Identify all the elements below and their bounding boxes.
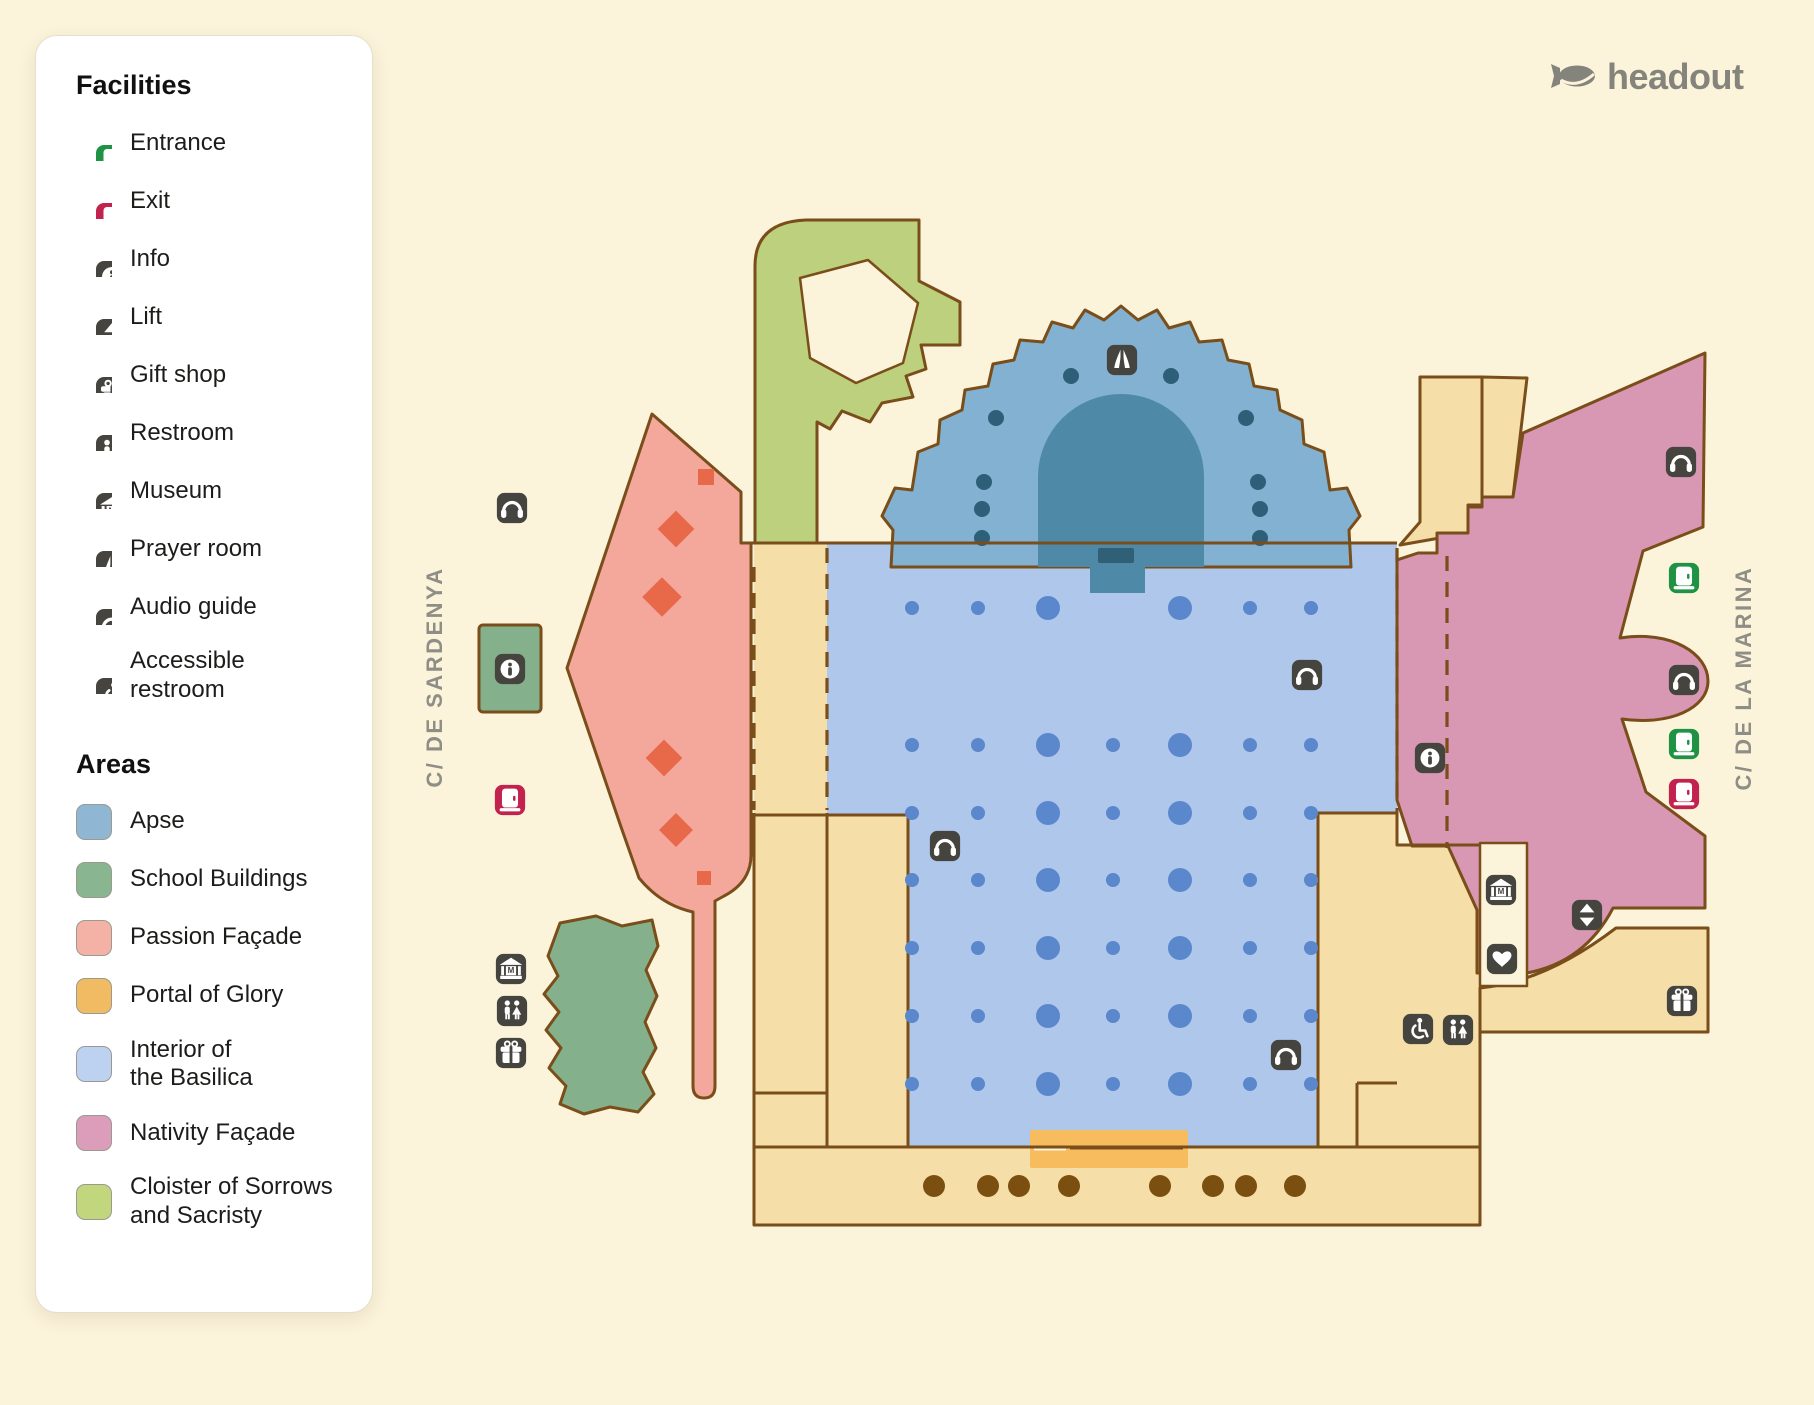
legend-area-row: Passion Façade: [76, 920, 348, 956]
gift-icon: [1667, 986, 1697, 1016]
area-swatch-apse: [76, 804, 112, 840]
legend-panel: Facilities EntranceExitInfoLiftGift shop…: [35, 35, 373, 1313]
restroom-icon: [1443, 1015, 1473, 1045]
legend-facility-row: Prayer room: [76, 531, 348, 567]
area-swatch-school: [76, 862, 112, 898]
legend-facility-label: Exit: [130, 187, 170, 216]
museum-icon: [1486, 875, 1516, 905]
street-label-marina: C/ DE LA MARINA: [1731, 566, 1756, 791]
door-green-icon: [76, 125, 112, 161]
door-green-icon: [1669, 563, 1699, 593]
audio-icon: [930, 831, 960, 861]
door-red-icon: [1669, 779, 1699, 809]
lift-icon: [1572, 900, 1602, 930]
area-swatch-cloister: [76, 1184, 112, 1220]
area-school-buildings: [544, 916, 658, 1114]
audio-icon: [1271, 1040, 1301, 1070]
legend-facility-label: Restroom: [130, 419, 234, 448]
legend-area-row: School Buildings: [76, 862, 348, 898]
legend-facility-row: Restroom: [76, 415, 348, 451]
door-green-icon: [1669, 729, 1699, 759]
areas-list: ApseSchool BuildingsPassion FaçadePortal…: [76, 804, 348, 1231]
surround-left-column: [754, 543, 827, 1147]
legend-facility-row: Entrance: [76, 125, 348, 161]
legend-facility-row: Audio guide: [76, 589, 348, 625]
altar: [1098, 548, 1134, 563]
legend-area-row: Cloister of Sorrows and Sacristy: [76, 1173, 348, 1231]
headout-wordmark: headout: [1607, 56, 1744, 98]
area-swatch-interior: [76, 1046, 112, 1082]
legend-facility-row: Lift: [76, 299, 348, 335]
prayer-icon: [1107, 345, 1137, 375]
surround-left-column-lower: [827, 813, 908, 1147]
legend-area-row: Interior of the Basilica: [76, 1036, 348, 1094]
legend-area-label: Interior of the Basilica: [130, 1036, 253, 1094]
info-icon: [495, 654, 525, 684]
door-red-icon: [76, 183, 112, 219]
wheelchair-icon: [1403, 1014, 1433, 1044]
legend-facility-label: Accessible restroom: [130, 647, 245, 705]
map-page: M: [0, 0, 1814, 1405]
facilities-title: Facilities: [76, 70, 348, 101]
apse-ambulatory: [1038, 394, 1204, 593]
legend-facility-label: Museum: [130, 477, 222, 506]
restroom-icon: [497, 996, 527, 1026]
area-swatch-portal: [76, 978, 112, 1014]
legend-facility-label: Audio guide: [130, 593, 257, 622]
legend-facility-row: Exit: [76, 183, 348, 219]
legend-area-label: Cloister of Sorrows and Sacristy: [130, 1173, 333, 1231]
area-swatch-passion: [76, 920, 112, 956]
museum-icon: [496, 954, 526, 984]
legend-facility-row: Museum: [76, 473, 348, 509]
areas-title: Areas: [76, 749, 348, 780]
audio-icon: [76, 589, 112, 625]
area-interior-of-basilica: [827, 543, 1397, 1147]
heart-icon: [1487, 944, 1517, 974]
area-swatch-nativity: [76, 1115, 112, 1151]
legend-area-row: Portal of Glory: [76, 978, 348, 1014]
legend-area-row: Nativity Façade: [76, 1115, 348, 1151]
restroom-icon: [76, 415, 112, 451]
legend-facility-label: Info: [130, 245, 170, 274]
legend-facility-row: Info: [76, 241, 348, 277]
door-red-icon: [495, 785, 525, 815]
legend-area-row: Apse: [76, 804, 348, 840]
legend-facility-label: Lift: [130, 303, 162, 332]
lift-icon: [76, 299, 112, 335]
legend-facility-label: Gift shop: [130, 361, 226, 390]
legend-facility-row: Gift shop: [76, 357, 348, 393]
headout-blimp-icon: [1548, 58, 1598, 96]
legend-area-label: Portal of Glory: [130, 981, 283, 1010]
audio-icon: [1292, 660, 1322, 690]
legend-area-label: Passion Façade: [130, 923, 302, 952]
street-label-sardenya: C/ DE SARDENYA: [422, 566, 447, 787]
legend-area-label: Nativity Façade: [130, 1119, 295, 1148]
wheelchair-icon: [76, 658, 112, 694]
prayer-icon: [76, 531, 112, 567]
headout-logo: headout: [1548, 56, 1744, 98]
audio-icon: [1669, 665, 1699, 695]
info-icon: [76, 241, 112, 277]
gift-icon: [496, 1038, 526, 1068]
audio-icon: [1666, 447, 1696, 477]
facilities-list: EntranceExitInfoLiftGift shopRestroomMus…: [76, 125, 348, 705]
gift-icon: [76, 357, 112, 393]
legend-area-label: School Buildings: [130, 865, 307, 894]
audio-icon: [497, 493, 527, 523]
legend-facility-label: Entrance: [130, 129, 226, 158]
legend-area-label: Apse: [130, 807, 185, 836]
info-icon: [1415, 743, 1445, 773]
legend-facility-label: Prayer room: [130, 535, 262, 564]
legend-facility-row: Accessible restroom: [76, 647, 348, 705]
museum-icon: [76, 473, 112, 509]
